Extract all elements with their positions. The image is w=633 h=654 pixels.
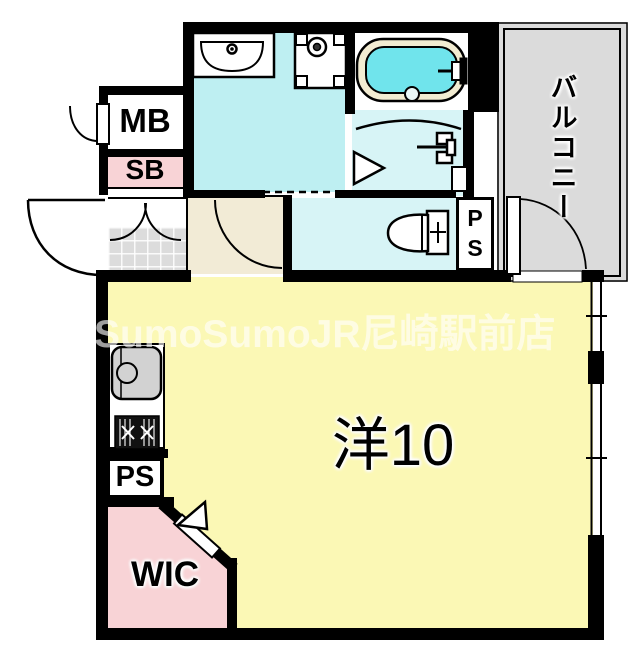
wall	[183, 22, 499, 33]
wall	[283, 270, 511, 282]
entrance	[108, 197, 186, 274]
wall	[283, 195, 292, 273]
wall	[345, 22, 355, 114]
wall	[96, 628, 604, 640]
balcony-label: バルコニー	[538, 45, 586, 250]
wall	[463, 110, 474, 198]
ps-left-label: PS	[106, 456, 164, 498]
wall	[96, 270, 191, 282]
main-room-label: 洋10	[258, 398, 528, 482]
hallway	[186, 195, 285, 274]
kitchen-counter	[108, 343, 165, 449]
toilet-room	[292, 198, 456, 272]
floor-plan: MB SB PS PS WIC 洋10 バルコニー SumoSumoJR尼崎駅前…	[0, 0, 633, 654]
sb-label: SB	[107, 153, 183, 187]
ps-right-label: PS	[456, 197, 494, 271]
wall	[183, 190, 265, 198]
entrance-door-swing	[28, 200, 105, 275]
wall	[588, 536, 604, 632]
wall	[588, 352, 604, 384]
bathtub-icon	[357, 39, 467, 101]
wall	[468, 22, 499, 112]
entrance-tile-floor	[108, 227, 186, 274]
wic-label: WIC	[110, 550, 220, 600]
washroom	[183, 28, 345, 192]
ps-right-text: PS	[464, 204, 486, 264]
wall	[227, 558, 237, 632]
wall	[335, 190, 456, 198]
bathroom	[352, 110, 463, 196]
wall	[102, 497, 174, 507]
wall	[582, 270, 604, 282]
mb-label: MB	[103, 90, 187, 152]
